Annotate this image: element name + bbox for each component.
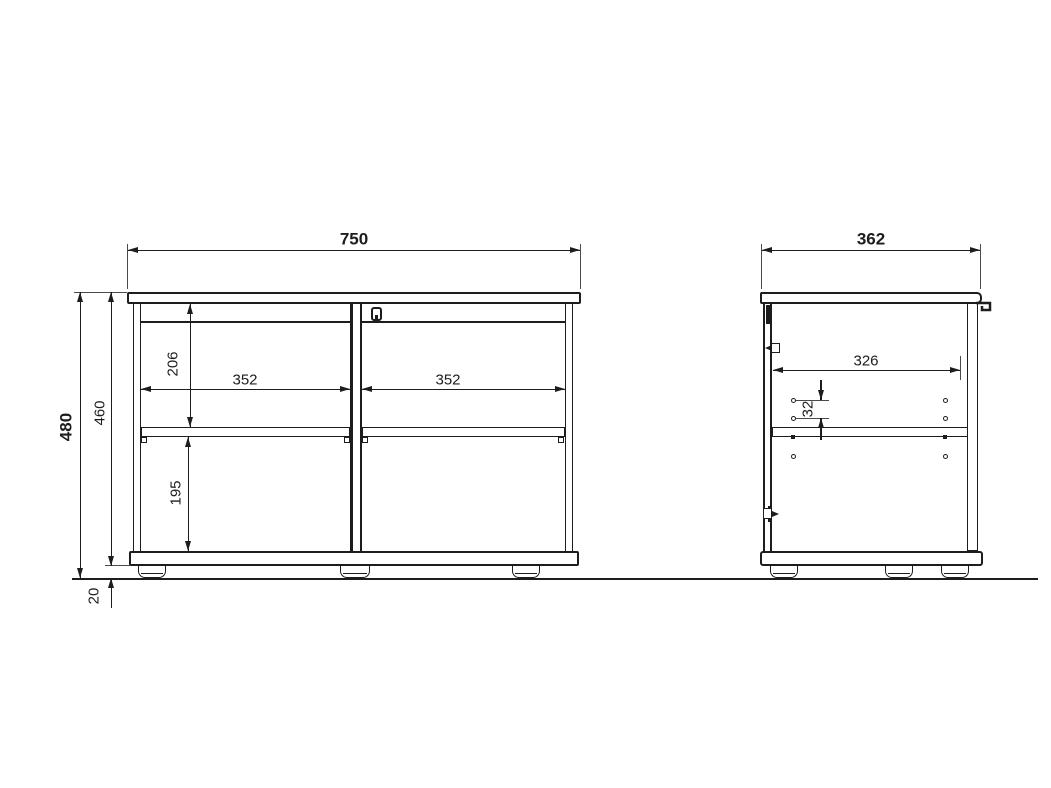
front-foot-left xyxy=(138,566,166,578)
dim-label-lower-compartment: 195 xyxy=(169,480,184,505)
extension-line xyxy=(980,244,981,289)
dim-line-460 xyxy=(111,292,113,566)
dim-label-overall-width: 750 xyxy=(340,231,368,248)
shelf-pin-icon xyxy=(943,435,947,439)
dim-line-362 xyxy=(762,250,980,252)
dim-label-overall-height: 480 xyxy=(58,413,75,441)
dim-line-206 xyxy=(190,304,192,427)
arrowhead xyxy=(108,292,114,302)
arrowhead xyxy=(108,556,114,566)
side-foot-middle xyxy=(885,566,913,578)
dim-label-body-height: 460 xyxy=(93,400,108,425)
side-shelf xyxy=(772,427,968,437)
shelf-hole-icon xyxy=(943,454,948,459)
hinge-mid-arrow-icon xyxy=(765,345,772,351)
dim-line-750 xyxy=(128,250,580,252)
dim-label-foot-height: 20 xyxy=(87,588,102,605)
side-back-panel xyxy=(967,303,978,551)
front-left-side-panel xyxy=(133,303,141,552)
front-bottom-panel xyxy=(129,551,579,566)
arrowhead xyxy=(950,367,960,373)
arrowhead xyxy=(187,417,193,427)
side-foot-back xyxy=(941,566,969,578)
arrowhead xyxy=(570,247,580,253)
hinge-bottom-arrow-icon xyxy=(772,511,779,517)
front-top-rail-right xyxy=(362,321,565,323)
dim-line-195 xyxy=(188,437,190,551)
arrowhead xyxy=(340,386,350,392)
dim-label-upper-compartment: 206 xyxy=(166,351,181,376)
arrowhead xyxy=(128,247,138,253)
dim-label-left-opening: 352 xyxy=(232,373,257,388)
shelf-hole-icon xyxy=(791,398,796,403)
arrowhead xyxy=(818,418,824,428)
extension-line xyxy=(796,418,829,419)
shelf-support-icon xyxy=(344,437,350,443)
arrowhead xyxy=(77,292,83,302)
arrowhead xyxy=(762,247,772,253)
front-top-rail-left xyxy=(141,321,350,323)
hinge-top-icon xyxy=(766,305,771,324)
dim-line-352-right xyxy=(362,389,565,391)
arrowhead xyxy=(555,386,565,392)
front-right-side-panel xyxy=(565,303,573,552)
shelf-pin-icon xyxy=(791,435,795,439)
side-foot-front xyxy=(770,566,798,578)
front-center-divider-left-edge xyxy=(350,304,353,551)
front-foot-center xyxy=(340,566,370,578)
dim-label-right-opening: 352 xyxy=(435,373,460,388)
arrowhead xyxy=(187,304,193,314)
lock-icon xyxy=(371,307,382,321)
arrowhead xyxy=(362,386,372,392)
arrowhead xyxy=(77,568,83,578)
dim-line-480 xyxy=(80,292,82,578)
technical-drawing: 750 480 460 20 206 195 352 xyxy=(0,0,1051,788)
dim-line-326 xyxy=(773,370,960,372)
shelf-hole-icon xyxy=(943,416,948,421)
side-top-panel xyxy=(760,292,982,304)
shelf-hole-icon xyxy=(943,398,948,403)
shelf-support-icon xyxy=(558,437,564,443)
shelf-support-icon xyxy=(141,437,147,443)
front-shelf-right xyxy=(362,427,565,437)
hinge-bottom-icon xyxy=(763,508,772,519)
arrowhead xyxy=(185,437,191,447)
extension-line xyxy=(580,244,581,289)
front-top-panel xyxy=(127,292,581,304)
shelf-hole-icon xyxy=(791,454,796,459)
arrowhead xyxy=(818,390,824,400)
arrowhead xyxy=(773,367,783,373)
hinge-mid-icon xyxy=(771,343,780,353)
front-shelf-left xyxy=(141,427,350,437)
dim-label-hole-spacing: 32 xyxy=(801,401,816,418)
dim-label-overall-depth: 362 xyxy=(857,231,885,248)
arrowhead xyxy=(970,247,980,253)
dim-label-inner-depth: 326 xyxy=(853,354,878,369)
arrowhead xyxy=(185,541,191,551)
dim-line-352-left xyxy=(141,389,350,391)
shelf-support-icon xyxy=(362,437,368,443)
shelf-hole-icon xyxy=(791,416,796,421)
wall-hook-icon xyxy=(976,299,998,317)
front-foot-right xyxy=(512,566,540,578)
ground-line xyxy=(72,578,1038,581)
arrowhead xyxy=(141,386,151,392)
side-bottom-panel xyxy=(760,551,983,566)
